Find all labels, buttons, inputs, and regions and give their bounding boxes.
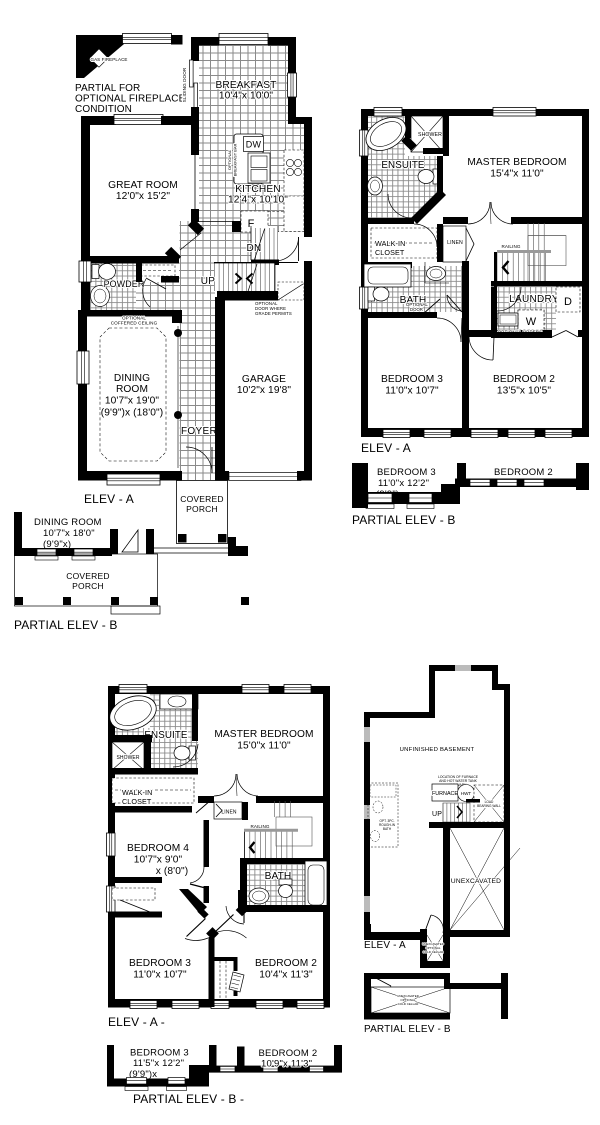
svg-text:CLOSET: CLOSET — [375, 248, 405, 257]
svg-text:10'4"x 10'0": 10'4"x 10'0" — [219, 91, 274, 102]
svg-text:PARTIAL ELEV - B: PARTIAL ELEV - B — [352, 513, 456, 527]
svg-text:CLOSET: CLOSET — [122, 797, 152, 806]
svg-text:WALK-IN: WALK-IN — [122, 788, 152, 797]
svg-text:RAILING: RAILING — [501, 244, 520, 249]
svg-text:BEDROOM 3: BEDROOM 3 — [130, 1048, 189, 1059]
svg-text:ELEV - A: ELEV - A — [364, 940, 406, 951]
svg-text:UP: UP — [432, 811, 442, 818]
svg-text:BEDROOM 2: BEDROOM 2 — [255, 958, 317, 969]
svg-text:COLD CELLAR: COLD CELLAR — [423, 950, 445, 954]
svg-text:15'4"x 11'0": 15'4"x 11'0" — [490, 169, 544, 180]
svg-text:SHOWER: SHOWER — [116, 755, 139, 761]
svg-text:x (8'0"): x (8'0") — [156, 866, 188, 877]
svg-text:W: W — [526, 316, 537, 328]
svg-text:PORCH: PORCH — [186, 504, 218, 514]
svg-text:10'7"x 19'0": 10'7"x 19'0" — [105, 396, 160, 407]
svg-text:COVERED: COVERED — [66, 571, 109, 581]
svg-text:BATH: BATH — [383, 827, 392, 831]
svg-text:ELEV - A: ELEV - A — [84, 492, 134, 506]
svg-text:11'5"x 12'2": 11'5"x 12'2" — [133, 1058, 184, 1069]
svg-text:PARTIAL ELEV - B: PARTIAL ELEV - B — [14, 618, 118, 632]
svg-text:10'9"x 11'3": 10'9"x 11'3" — [261, 1059, 312, 1070]
svg-text:D: D — [564, 296, 572, 308]
svg-text:BREAKFAST: BREAKFAST — [216, 80, 277, 91]
svg-text:BEARING WALL: BEARING WALL — [477, 804, 501, 808]
svg-text:11'0"x 10'7": 11'0"x 10'7" — [133, 970, 187, 981]
svg-text:UP: UP — [201, 276, 216, 287]
svg-text:ELEV - A -: ELEV - A - — [108, 1015, 165, 1029]
svg-text:BEDROOM 3: BEDROOM 3 — [381, 374, 443, 385]
svg-text:MASTER BEDROOM: MASTER BEDROOM — [467, 157, 566, 168]
svg-text:FURNACE: FURNACE — [432, 791, 458, 797]
svg-text:BEDROOM 2: BEDROOM 2 — [494, 467, 553, 478]
svg-text:DINING: DINING — [114, 373, 150, 384]
svg-text:BEDROOM 4: BEDROOM 4 — [127, 843, 189, 854]
svg-text:FOYER: FOYER — [181, 426, 217, 437]
svg-text:BEDROOM 2: BEDROOM 2 — [493, 374, 555, 385]
svg-text:COVERED: COVERED — [180, 494, 223, 504]
svg-text:PORCH: PORCH — [72, 581, 104, 591]
svg-text:RAILING: RAILING — [250, 824, 269, 829]
svg-text:11'0"x 10'7": 11'0"x 10'7" — [385, 386, 439, 397]
svg-text:LINEN: LINEN — [221, 810, 237, 816]
svg-text:WALK-IN: WALK-IN — [375, 239, 405, 248]
svg-text:LAUNDRY: LAUNDRY — [509, 294, 559, 305]
svg-text:BEDROOM 3: BEDROOM 3 — [129, 958, 191, 969]
svg-text:DW: DW — [246, 140, 262, 150]
svg-text:15'0"x 11'0": 15'0"x 11'0" — [237, 741, 291, 752]
svg-text:10'4"x 11'3": 10'4"x 11'3" — [259, 970, 313, 981]
svg-text:SLIDING DOOR: SLIDING DOOR — [182, 67, 187, 102]
svg-text:COLD CELLAR: COLD CELLAR — [398, 1002, 420, 1006]
svg-text:ENSUITE: ENSUITE — [381, 160, 425, 171]
svg-text:PARTIAL FOR: PARTIAL FOR — [75, 83, 140, 94]
svg-text:DINING ROOM: DINING ROOM — [34, 517, 102, 528]
svg-text:10'7"x 9'0": 10'7"x 9'0" — [134, 855, 183, 866]
svg-text:MASTER BEDROOM: MASTER BEDROOM — [214, 729, 313, 740]
svg-text:UNEXCAVATED: UNEXCAVATED — [451, 878, 501, 885]
svg-text:ROOM: ROOM — [116, 384, 148, 395]
svg-text:KITCHEN: KITCHEN — [235, 184, 280, 195]
svg-text:GAS FIREPLACE: GAS FIREPLACE — [90, 57, 127, 62]
svg-text:(9'9")x (18'0"): (9'9")x (18'0") — [101, 408, 163, 419]
svg-text:GREAT ROOM: GREAT ROOM — [108, 180, 178, 191]
svg-text:PARTIAL ELEV - B -: PARTIAL ELEV - B - — [133, 1092, 244, 1106]
svg-text:12'4"x 10'10": 12'4"x 10'10" — [228, 195, 288, 206]
svg-text:OPTIONAL FIREPLACE: OPTIONAL FIREPLACE — [75, 94, 186, 105]
svg-text:BEDROOM 2: BEDROOM 2 — [259, 1048, 318, 1059]
svg-text:HWT: HWT — [461, 791, 472, 796]
svg-text:OPTIONAL: OPTIONAL — [227, 149, 232, 170]
svg-text:SHOWER: SHOWER — [418, 132, 442, 138]
svg-text:COFFERED CEILING: COFFERED CEILING — [111, 321, 158, 326]
svg-text:PARTIAL ELEV - B: PARTIAL ELEV - B — [364, 1024, 451, 1035]
svg-text:10'2"x 19'8": 10'2"x 19'8" — [237, 385, 292, 396]
svg-text:ELEV - A: ELEV - A — [361, 441, 411, 455]
svg-text:LINEN: LINEN — [447, 240, 463, 246]
svg-text:DOOR: DOOR — [410, 307, 423, 312]
svg-text:13'5"x 10'5": 13'5"x 10'5" — [497, 386, 552, 397]
svg-text:10'7"x 18'0": 10'7"x 18'0" — [43, 528, 95, 539]
svg-text:UNFINISHED BASEMENT: UNFINISHED BASEMENT — [400, 747, 475, 753]
svg-text:BREAKFAST BAR: BREAKFAST BAR — [233, 143, 238, 176]
svg-text:GARAGE: GARAGE — [242, 374, 286, 385]
svg-text:GRADE PERMITS: GRADE PERMITS — [255, 311, 292, 316]
svg-text:12'0"x 15'2": 12'0"x 15'2" — [116, 191, 171, 202]
svg-text:11'0"x 12'2": 11'0"x 12'2" — [378, 478, 429, 489]
svg-text:BEDROOM 3: BEDROOM 3 — [377, 467, 436, 478]
svg-text:CONDITION: CONDITION — [75, 104, 132, 115]
